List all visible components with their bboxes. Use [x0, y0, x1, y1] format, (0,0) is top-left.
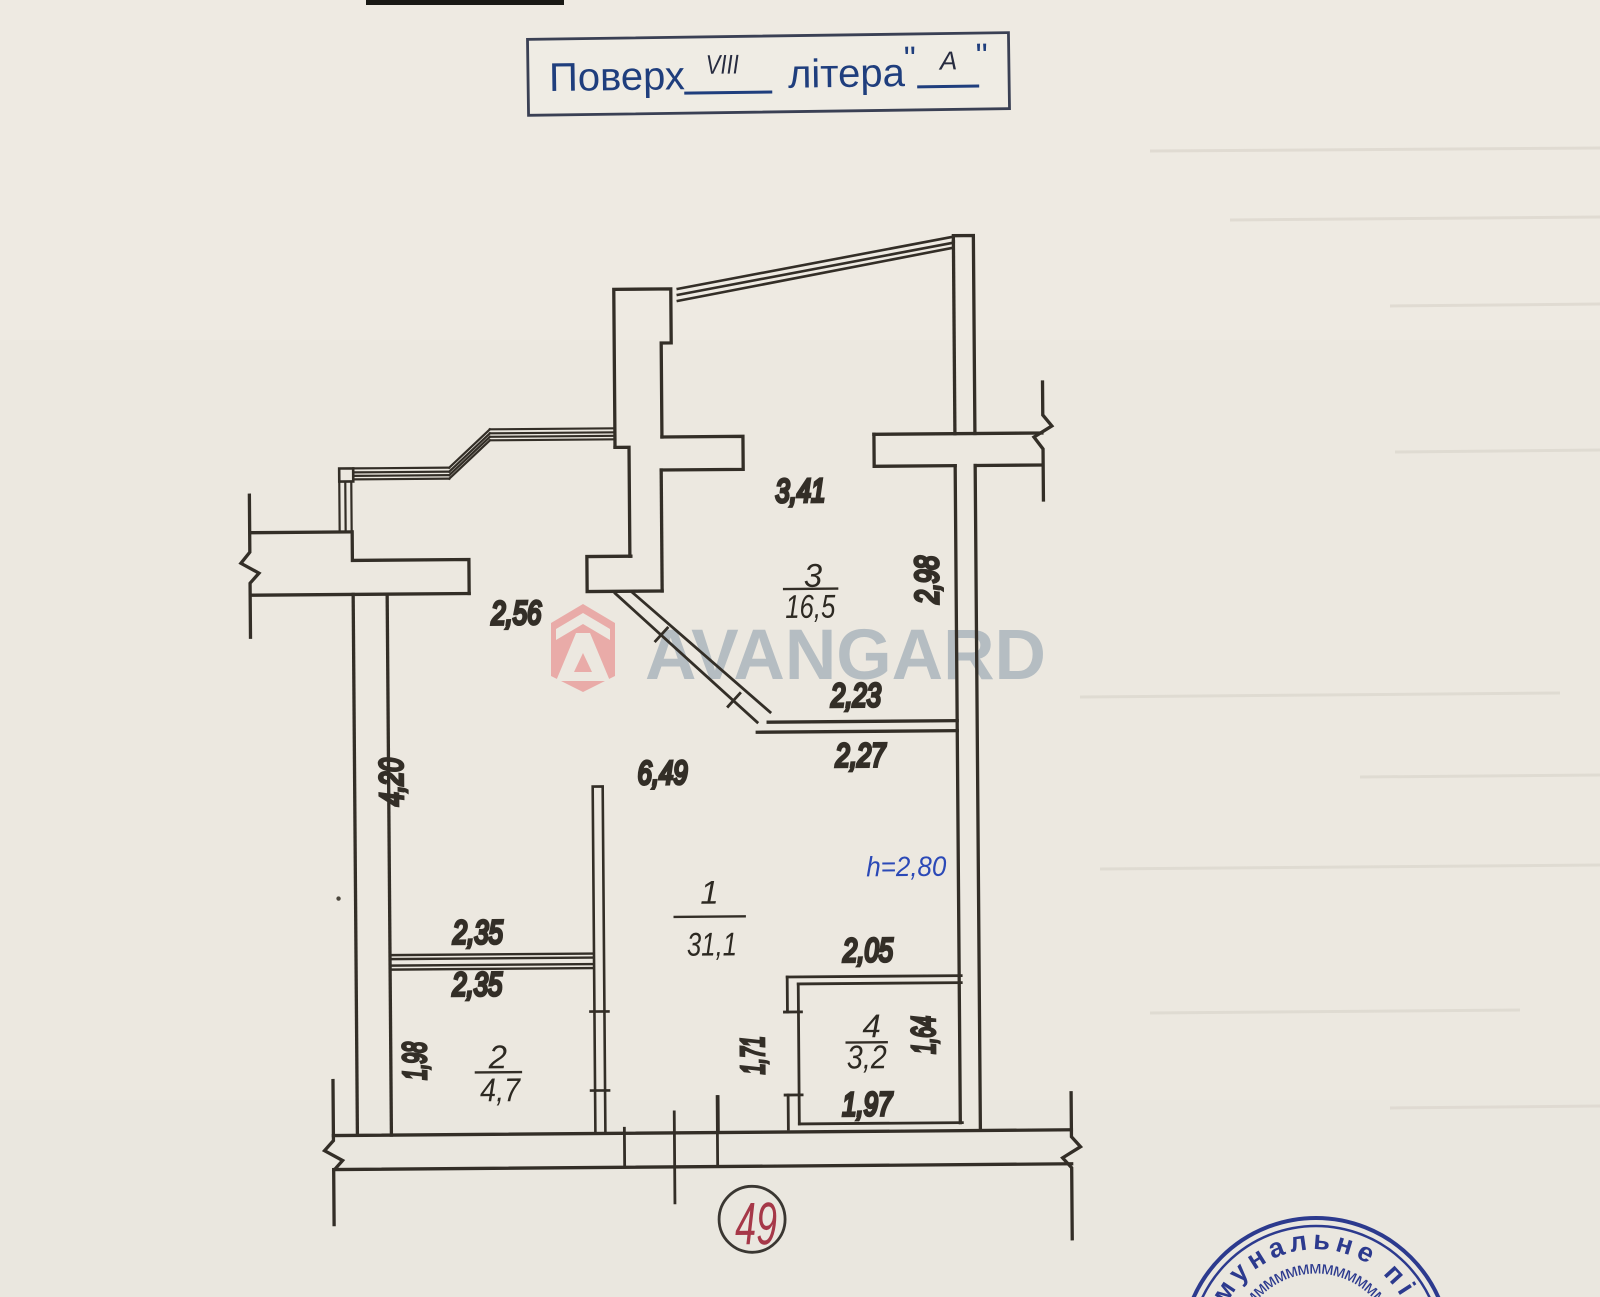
- svg-text:49: 49: [735, 1190, 778, 1257]
- svg-text:4,7: 4,7: [480, 1071, 522, 1108]
- svg-text:2,56: 2,56: [490, 594, 542, 631]
- svg-text:": ": [904, 40, 917, 78]
- svg-text:2,05: 2,05: [842, 931, 894, 968]
- svg-text:": ": [976, 37, 989, 75]
- svg-text:літера: літера: [788, 51, 906, 97]
- svg-text:3,41: 3,41: [775, 472, 825, 509]
- svg-text:31,1: 31,1: [687, 925, 737, 962]
- svg-text:3,2: 3,2: [847, 1038, 887, 1075]
- svg-text:2,23: 2,23: [830, 676, 882, 713]
- svg-text:2,35: 2,35: [452, 913, 504, 950]
- svg-text:h=2,80: h=2,80: [866, 851, 947, 883]
- svg-text:2,98: 2,98: [908, 555, 945, 605]
- svg-text:1,98: 1,98: [396, 1041, 433, 1080]
- svg-text:6,49: 6,49: [637, 754, 687, 791]
- svg-text:2,35: 2,35: [451, 965, 503, 1002]
- svg-text:2,27: 2,27: [835, 736, 887, 773]
- svg-text:1,97: 1,97: [842, 1085, 894, 1122]
- svg-text:VIII: VIII: [706, 49, 740, 79]
- svg-text:А: А: [938, 45, 958, 75]
- svg-text:1,64: 1,64: [904, 1016, 941, 1054]
- svg-text:Поверх: Поверх: [549, 54, 685, 100]
- svg-text:16,5: 16,5: [785, 588, 836, 625]
- svg-text:1: 1: [700, 874, 719, 911]
- svg-text:4,20: 4,20: [372, 757, 409, 806]
- svg-text:2: 2: [487, 1038, 507, 1075]
- svg-text:1,71: 1,71: [734, 1036, 771, 1074]
